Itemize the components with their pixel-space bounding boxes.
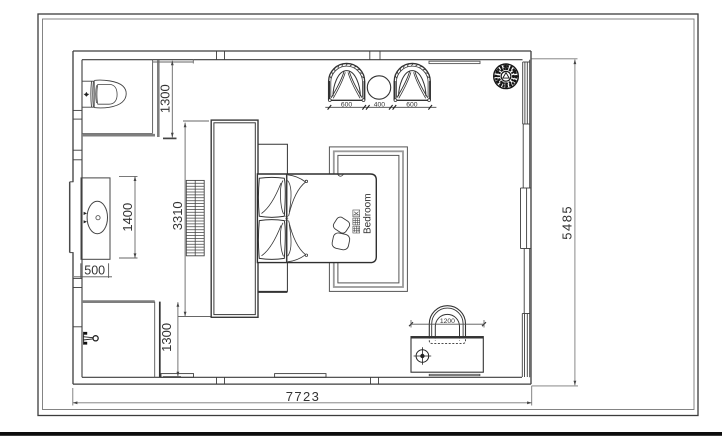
svg-text:1200: 1200 <box>440 318 455 325</box>
svg-text:1400: 1400 <box>120 203 135 232</box>
svg-text:500: 500 <box>84 264 105 278</box>
svg-text:1300: 1300 <box>159 323 174 352</box>
svg-text:Bedroom: Bedroom <box>362 193 373 234</box>
svg-text:600: 600 <box>406 101 418 108</box>
svg-text:400: 400 <box>374 101 386 108</box>
svg-text:600: 600 <box>341 101 353 108</box>
svg-text:7723: 7723 <box>286 389 321 404</box>
svg-text:1300: 1300 <box>158 84 173 113</box>
svg-text:5485: 5485 <box>560 205 575 240</box>
svg-text:3310: 3310 <box>170 201 185 230</box>
